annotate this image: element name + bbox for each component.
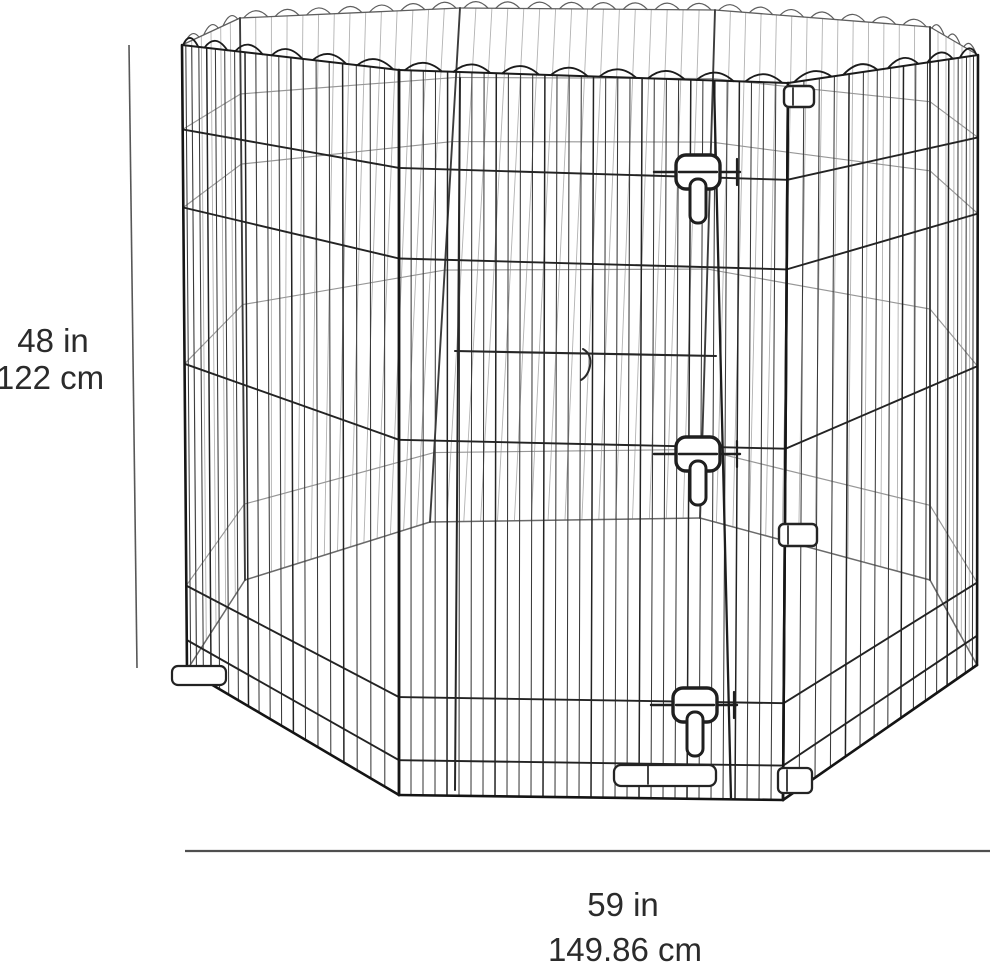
product-dimension-image: 48 in 122 cm 59 in 149.86 cm [0,0,1000,964]
height-label-centimeters: 122 cm [0,359,104,396]
pen-wireframe [172,2,978,800]
height-label-inches: 48 in [17,322,89,359]
pen-illustration: 48 in 122 cm 59 in 149.86 cm [0,0,1000,964]
height-dimension-line [129,45,137,668]
width-label-centimeters: 149.86 cm [548,931,702,964]
width-label-inches: 59 in [587,886,659,923]
